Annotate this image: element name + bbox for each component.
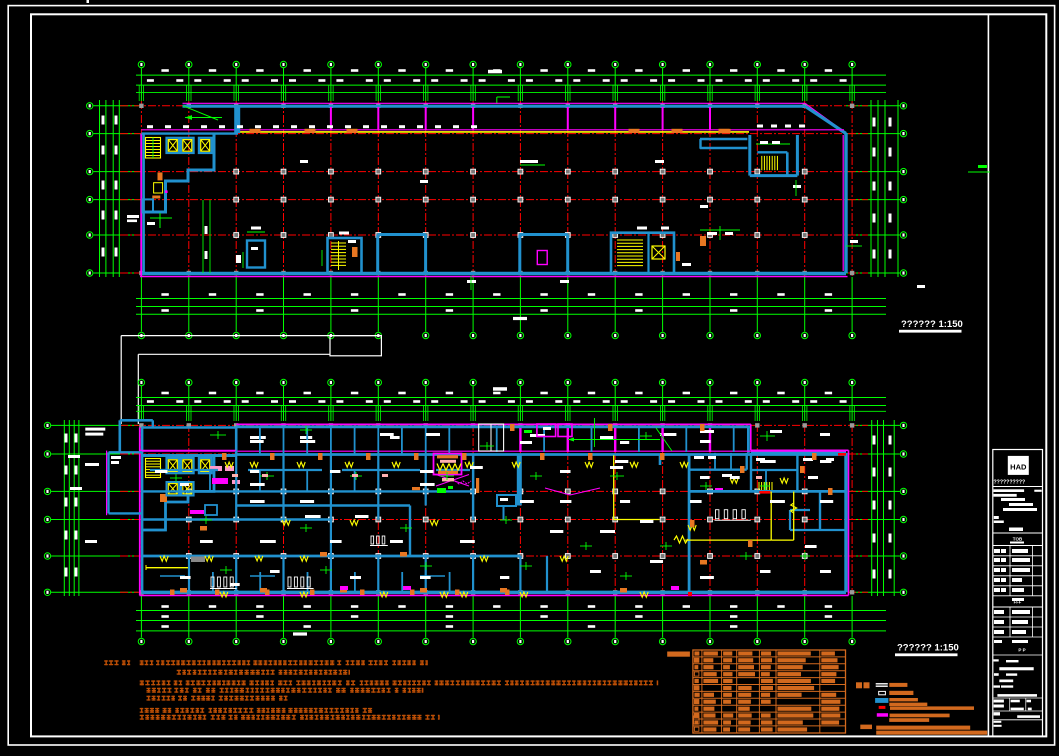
svg-text:TOB: TOB [1013, 537, 1023, 542]
svg-text:P P: P P [1018, 648, 1025, 653]
svg-text:HAD: HAD [1010, 463, 1027, 472]
svg-text:?????? 1:150: ?????? 1:150 [897, 643, 959, 654]
svg-text:?????? 1:150: ?????? 1:150 [901, 319, 963, 330]
svg-text:??????????: ?????????? [994, 480, 1026, 486]
